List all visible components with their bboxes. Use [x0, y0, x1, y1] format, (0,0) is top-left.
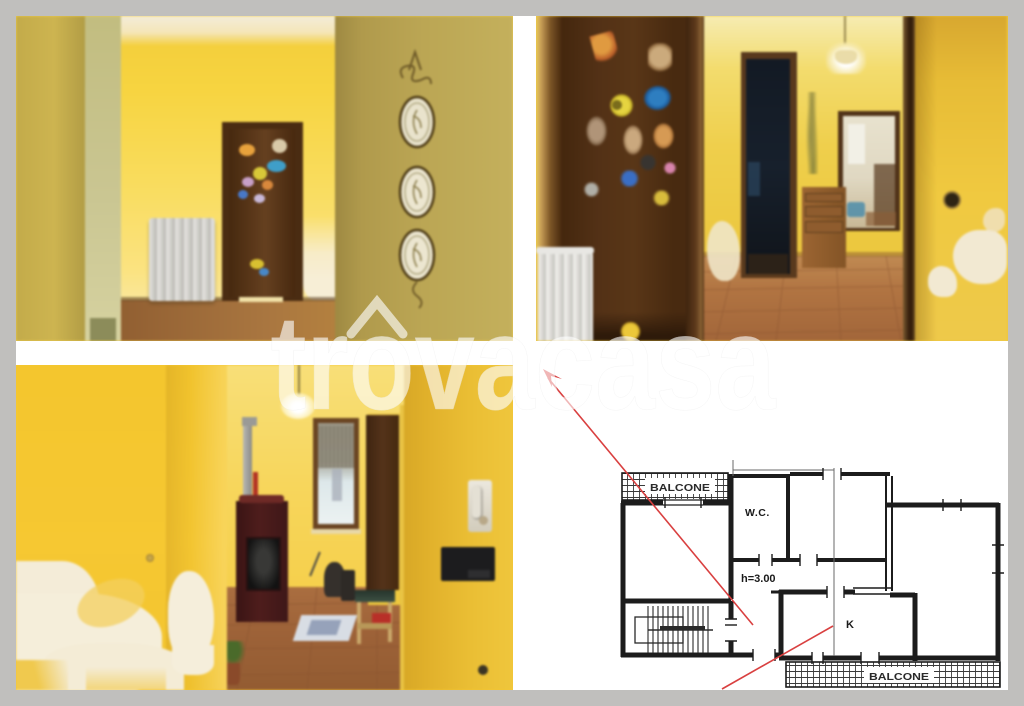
svg-text:trovacasa: trovacasa	[271, 287, 777, 438]
